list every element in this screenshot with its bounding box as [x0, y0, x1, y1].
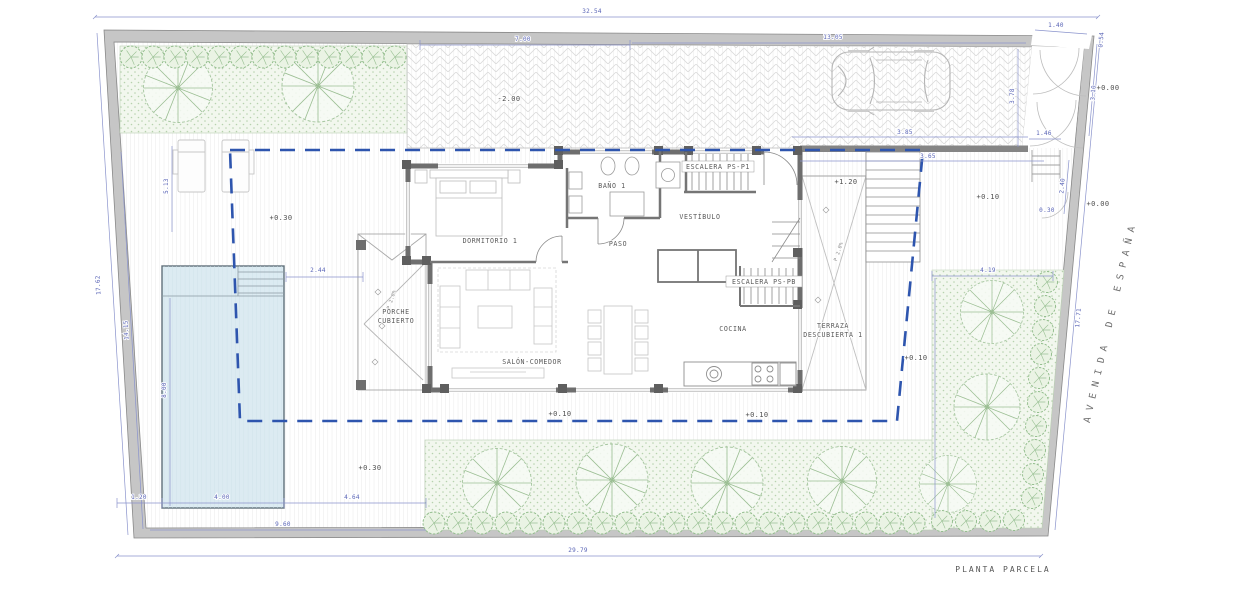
- room-label-dormitorio: DORMITORIO 1: [463, 237, 518, 245]
- level-street-a: +0.00: [1096, 84, 1119, 92]
- dim-wall-off: 0.30: [1039, 207, 1055, 214]
- hedge-row-bottom: [423, 512, 925, 534]
- dim-corner: 0.54: [1097, 32, 1105, 48]
- level-ramp: -2.00: [497, 95, 520, 103]
- dim-ramp-width: 7.00: [515, 36, 531, 43]
- level-garden-ne: +0.10: [976, 193, 999, 201]
- room-label-terraza-2: DESCUBIERTA 1: [803, 331, 862, 339]
- dim-pool-margin: 1.20: [131, 494, 147, 501]
- dim-pool-length: 8.00: [161, 382, 168, 398]
- swimming-pool: [162, 266, 284, 508]
- dim-bottom-total: 29.79: [568, 547, 588, 554]
- dim-side-a: 2.40: [1058, 178, 1066, 194]
- dim-entry-c: 1.46: [1036, 130, 1052, 137]
- room-label-escalera-ps-pb: ESCALERA PS-PB: [732, 278, 796, 286]
- dim-pool-width: 4.00: [214, 494, 230, 501]
- dim-top-total: 32.54: [582, 8, 602, 15]
- dim-deck-w: 5.13: [163, 178, 170, 194]
- site-plan-canvas: 32.54 7.00 13.05 1.40 0.54 3.10 3.78 3.8…: [0, 0, 1235, 606]
- room-label-cocina: COCINA: [719, 325, 746, 333]
- room-label-vestibulo: VESTÍBULO: [679, 212, 720, 221]
- dim-pool-gap: 2.44: [310, 267, 326, 274]
- dim-deck-s: 4.64: [344, 494, 360, 501]
- dim-gate-width: 1.40: [1048, 22, 1064, 29]
- level-street-b: +0.00: [1086, 200, 1109, 208]
- room-label-escalera-ps-p1: ESCALERA PS-P1: [686, 163, 750, 171]
- level-garden-s2: +0.10: [745, 411, 768, 419]
- exterior-stair: [866, 152, 920, 262]
- room-label-paso: PASO: [609, 240, 627, 248]
- site-plan-drawing: 32.54 7.00 13.05 1.40 0.54 3.10 3.78 3.8…: [0, 0, 1235, 606]
- room-label-terraza-1: TERRAZA: [817, 322, 849, 330]
- dim-entry-b: 3.65: [920, 153, 936, 160]
- level-garden-e: +0.10: [904, 354, 927, 362]
- level-deck-lower: +0.30: [358, 464, 381, 472]
- dim-drive-width: 13.05: [823, 34, 843, 41]
- dim-drive-depth: 3.78: [1009, 88, 1016, 104]
- kitchen-counter: [684, 362, 796, 386]
- dim-left-garden: 14.15: [122, 320, 130, 340]
- room-label-porche-2: CUBIERTO: [378, 317, 415, 325]
- drawing-title: PLANTA PARCELA: [955, 565, 1050, 574]
- room-label-bano: BAÑO 1: [598, 181, 625, 190]
- dim-bed-e-width: 4.19: [980, 267, 996, 274]
- room-label-salon-comedor: SALÓN-COMEDOR: [502, 357, 561, 366]
- level-deck-upper: +0.30: [269, 214, 292, 222]
- level-stair-landing: +1.20: [834, 178, 857, 186]
- dim-left-total: 17.62: [94, 275, 102, 295]
- level-garden-s1: +0.10: [548, 410, 571, 418]
- dim-deck-s-total: 9.60: [275, 521, 291, 528]
- dim-entry-a: 3.85: [897, 129, 913, 136]
- room-label-porche-1: PORCHE: [382, 308, 409, 316]
